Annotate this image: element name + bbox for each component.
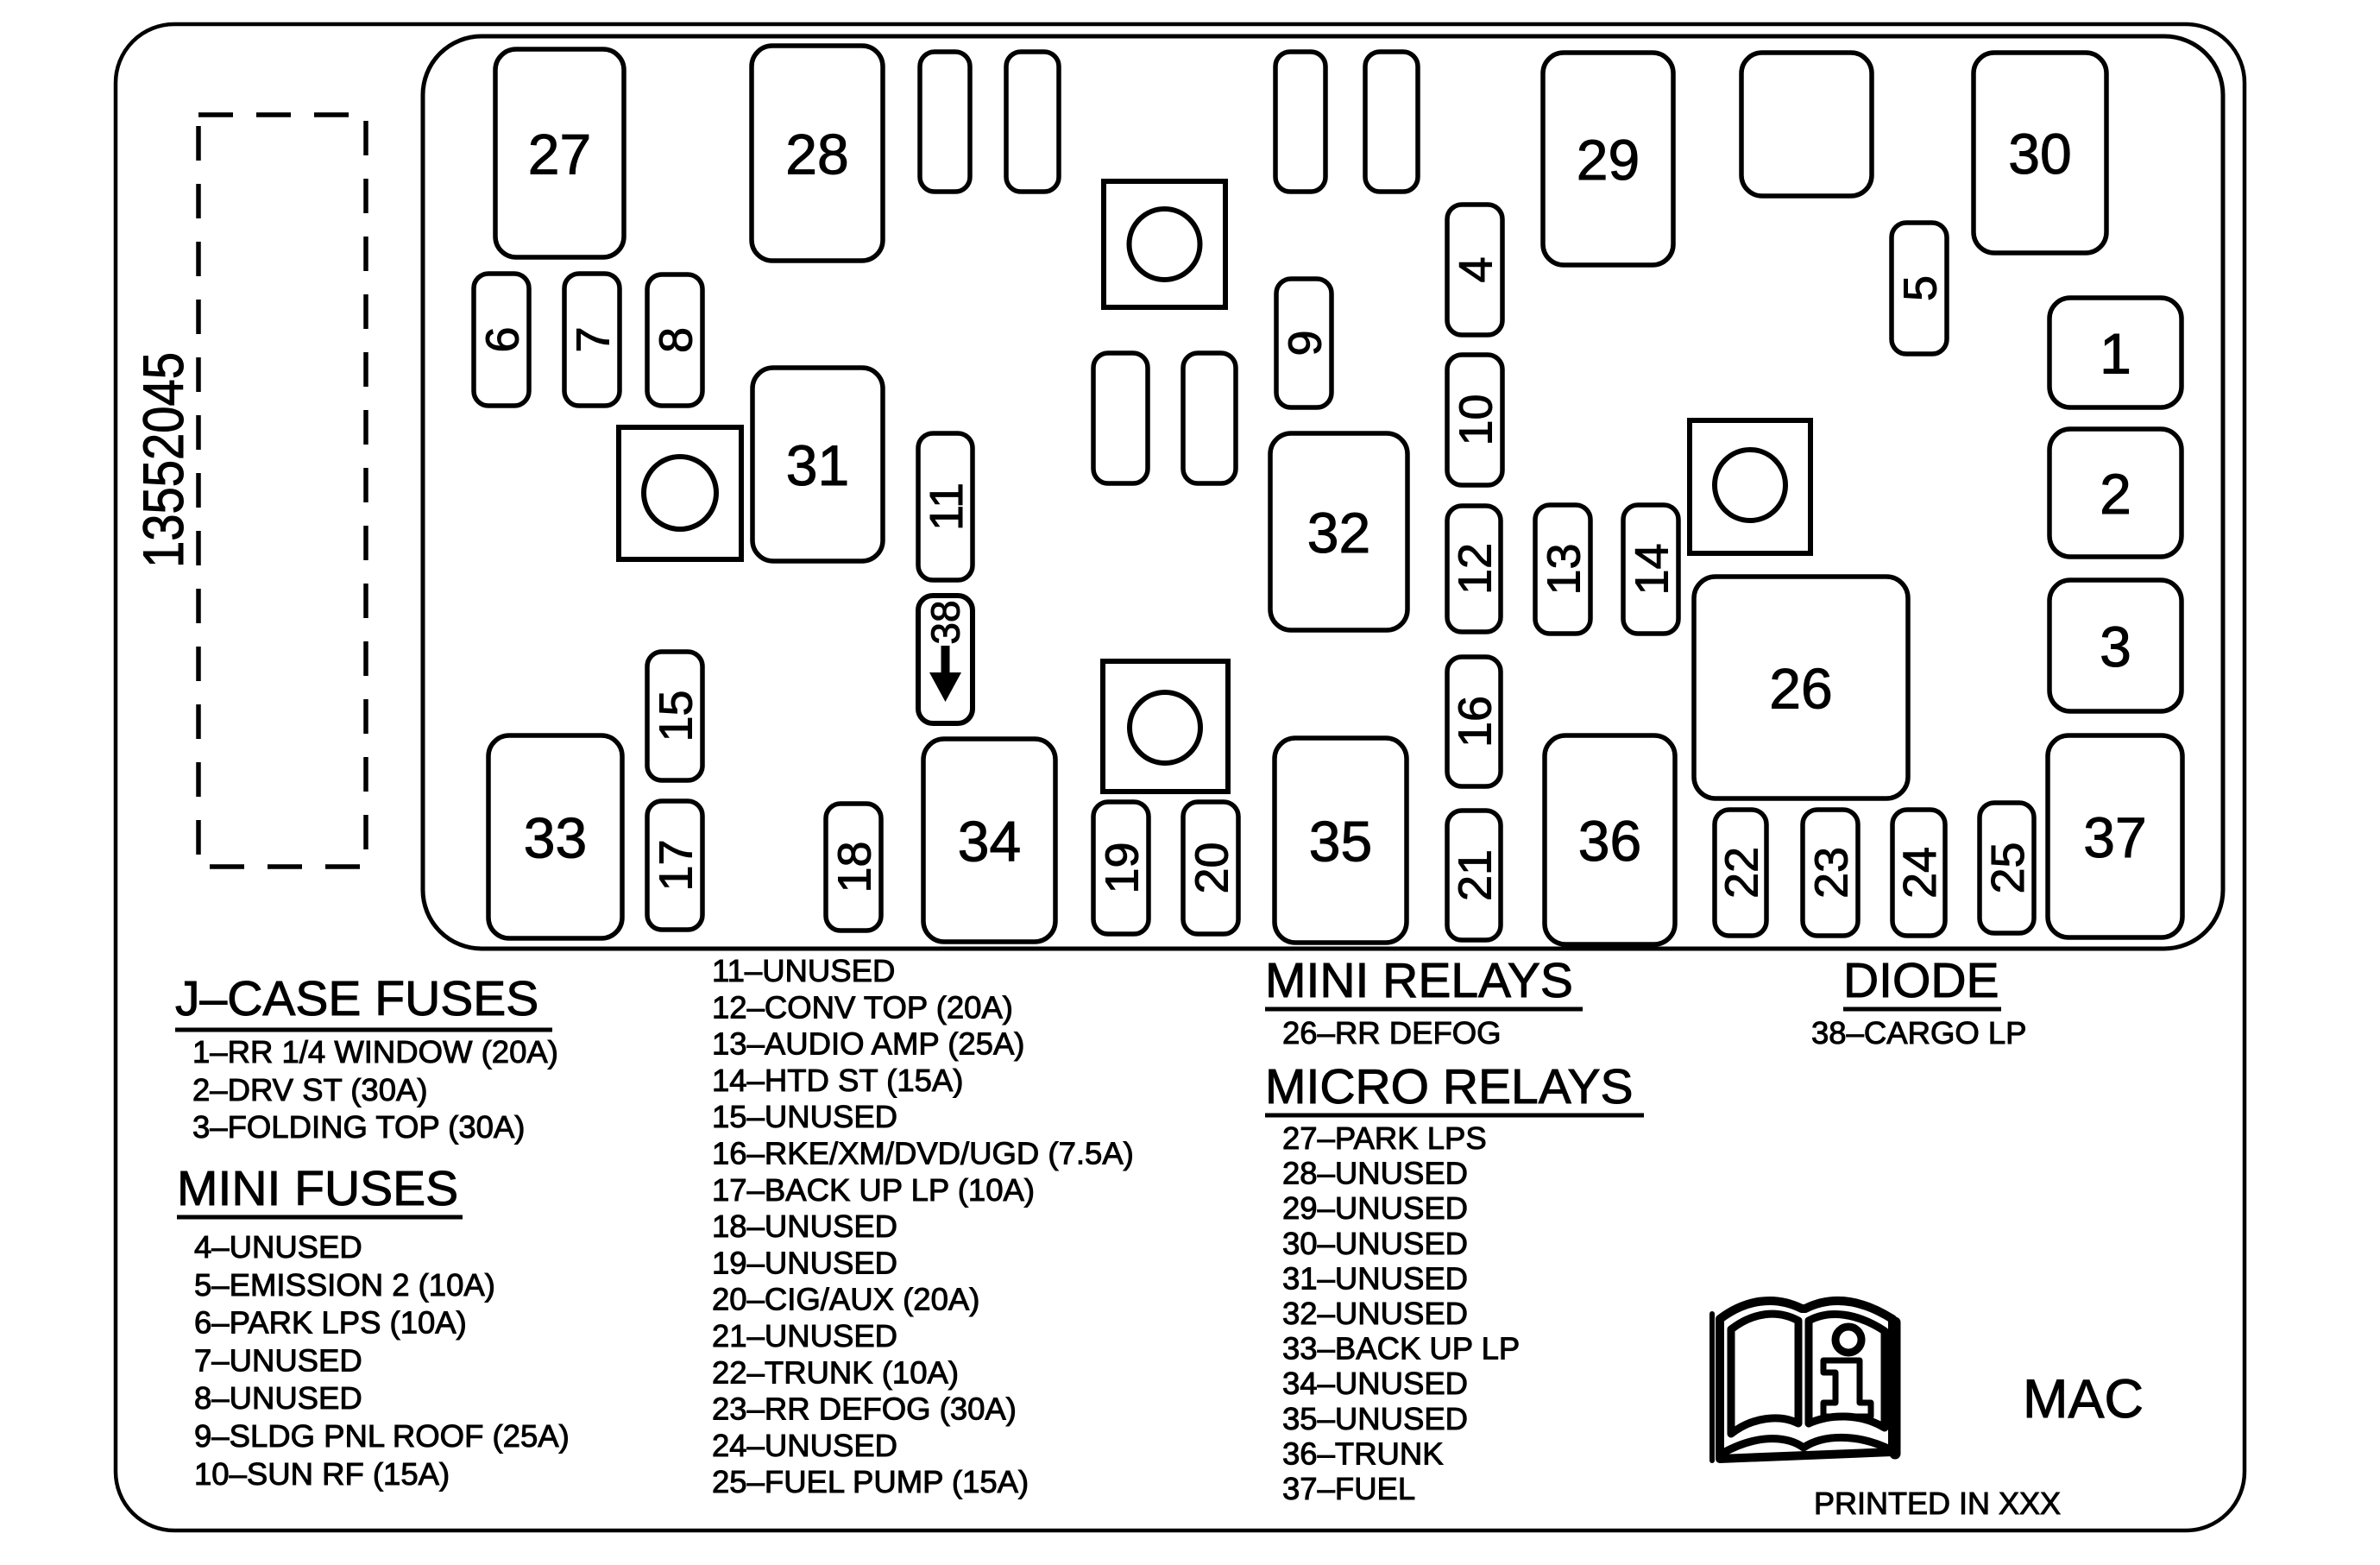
- svg-text:16–RKE/XM/DVD/UGD (7.5A): 16–RKE/XM/DVD/UGD (7.5A): [712, 1136, 1134, 1171]
- svg-text:35–UNUSED: 35–UNUSED: [1282, 1401, 1468, 1436]
- svg-text:32: 32: [1307, 501, 1370, 565]
- svg-text:MINI FUSES: MINI FUSES: [177, 1161, 458, 1216]
- svg-text:29: 29: [1577, 128, 1640, 192]
- svg-text:J–CASE FUSES: J–CASE FUSES: [175, 971, 538, 1026]
- svg-text:MAC: MAC: [2023, 1369, 2144, 1429]
- svg-text:34–UNUSED: 34–UNUSED: [1282, 1366, 1468, 1401]
- svg-text:7: 7: [567, 326, 619, 352]
- svg-text:4–UNUSED: 4–UNUSED: [194, 1229, 362, 1265]
- svg-text:10: 10: [1450, 394, 1502, 445]
- svg-text:4: 4: [1450, 256, 1502, 282]
- svg-text:6–PARK LPS (10A): 6–PARK LPS (10A): [194, 1305, 467, 1341]
- svg-text:22–TRUNK (10A): 22–TRUNK (10A): [712, 1354, 959, 1390]
- svg-text:23: 23: [1805, 847, 1857, 899]
- svg-text:38–CARGO LP: 38–CARGO LP: [1811, 1015, 2027, 1051]
- svg-text:28–UNUSED: 28–UNUSED: [1282, 1156, 1468, 1191]
- svg-text:8–UNUSED: 8–UNUSED: [194, 1380, 362, 1416]
- svg-text:34: 34: [958, 809, 1021, 873]
- svg-text:36–TRUNK: 36–TRUNK: [1282, 1436, 1444, 1471]
- svg-text:21: 21: [1449, 849, 1501, 901]
- svg-text:13–AUDIO AMP (25A): 13–AUDIO AMP (25A): [712, 1026, 1024, 1062]
- svg-text:6: 6: [476, 326, 528, 352]
- svg-text:9–SLDG PNL ROOF (25A): 9–SLDG PNL ROOF (25A): [194, 1418, 570, 1454]
- svg-text:14: 14: [1626, 543, 1678, 595]
- svg-text:33–BACK UP LP: 33–BACK UP LP: [1282, 1331, 1520, 1366]
- svg-text:38: 38: [923, 600, 968, 644]
- svg-text:30: 30: [2008, 122, 2071, 186]
- svg-text:26: 26: [1769, 656, 1832, 720]
- svg-text:25–FUEL PUMP (15A): 25–FUEL PUMP (15A): [712, 1464, 1029, 1499]
- svg-text:9: 9: [1279, 330, 1331, 356]
- svg-text:24: 24: [1894, 847, 1946, 899]
- svg-text:13: 13: [1538, 543, 1590, 595]
- svg-text:29–UNUSED: 29–UNUSED: [1282, 1190, 1468, 1226]
- svg-text:11: 11: [921, 483, 973, 531]
- svg-text:17: 17: [650, 839, 702, 891]
- svg-text:18–UNUSED: 18–UNUSED: [712, 1208, 897, 1244]
- svg-text:18: 18: [828, 841, 880, 893]
- svg-text:1: 1: [2100, 321, 2131, 385]
- svg-text:15: 15: [650, 690, 702, 741]
- svg-text:3: 3: [2100, 615, 2131, 678]
- svg-text:PRINTED IN XXX: PRINTED IN XXX: [1814, 1486, 2061, 1521]
- svg-text:5: 5: [1894, 275, 1946, 301]
- svg-text:2: 2: [2100, 462, 2131, 526]
- svg-text:31: 31: [786, 433, 849, 497]
- svg-text:15–UNUSED: 15–UNUSED: [712, 1099, 897, 1134]
- svg-text:31–UNUSED: 31–UNUSED: [1282, 1260, 1468, 1296]
- svg-text:DIODE: DIODE: [1843, 953, 1999, 1008]
- svg-text:17–BACK UP LP (10A): 17–BACK UP LP (10A): [712, 1172, 1035, 1208]
- svg-text:3–FOLDING TOP (30A): 3–FOLDING TOP (30A): [192, 1109, 525, 1145]
- svg-text:14–HTD ST (15A): 14–HTD ST (15A): [712, 1063, 963, 1098]
- svg-text:12: 12: [1449, 543, 1501, 595]
- svg-text:26–RR DEFOG: 26–RR DEFOG: [1282, 1015, 1502, 1051]
- svg-text:MINI RELAYS: MINI RELAYS: [1265, 953, 1573, 1008]
- svg-text:33: 33: [524, 805, 587, 869]
- svg-text:5–EMISSION 2 (10A): 5–EMISSION 2 (10A): [194, 1267, 495, 1303]
- svg-text:36: 36: [1578, 809, 1641, 873]
- svg-text:27–PARK LPS: 27–PARK LPS: [1282, 1120, 1487, 1156]
- svg-text:35: 35: [1309, 809, 1372, 873]
- svg-text:MICRO RELAYS: MICRO RELAYS: [1265, 1059, 1634, 1114]
- svg-text:7–UNUSED: 7–UNUSED: [194, 1342, 362, 1378]
- svg-text:23–RR DEFOG (30A): 23–RR DEFOG (30A): [712, 1391, 1017, 1427]
- svg-text:16: 16: [1449, 696, 1501, 748]
- svg-text:32–UNUSED: 32–UNUSED: [1282, 1296, 1468, 1331]
- svg-text:13552045: 13552045: [131, 352, 195, 568]
- svg-text:1–RR 1/4 WINDOW (20A): 1–RR 1/4 WINDOW (20A): [192, 1034, 558, 1070]
- svg-text:10–SUN RF (15A): 10–SUN RF (15A): [194, 1456, 450, 1492]
- svg-text:22: 22: [1716, 847, 1767, 899]
- svg-text:37: 37: [2083, 805, 2146, 869]
- svg-text:20: 20: [1186, 842, 1237, 893]
- svg-text:2–DRV ST (30A): 2–DRV ST (30A): [192, 1072, 428, 1107]
- svg-text:21–UNUSED: 21–UNUSED: [712, 1318, 897, 1354]
- svg-text:11–UNUSED: 11–UNUSED: [712, 953, 895, 988]
- svg-text:8: 8: [650, 327, 702, 353]
- svg-text:24–UNUSED: 24–UNUSED: [712, 1428, 897, 1463]
- svg-text:28: 28: [785, 122, 848, 186]
- svg-text:12–CONV TOP (20A): 12–CONV TOP (20A): [712, 989, 1013, 1025]
- svg-text:25: 25: [1982, 842, 2034, 893]
- svg-text:27: 27: [528, 122, 591, 186]
- svg-text:19: 19: [1096, 842, 1148, 893]
- svg-text:37–FUEL: 37–FUEL: [1282, 1471, 1415, 1506]
- svg-text:19–UNUSED: 19–UNUSED: [712, 1245, 897, 1280]
- svg-text:20–CIG/AUX (20A): 20–CIG/AUX (20A): [712, 1282, 979, 1317]
- svg-text:30–UNUSED: 30–UNUSED: [1282, 1226, 1468, 1261]
